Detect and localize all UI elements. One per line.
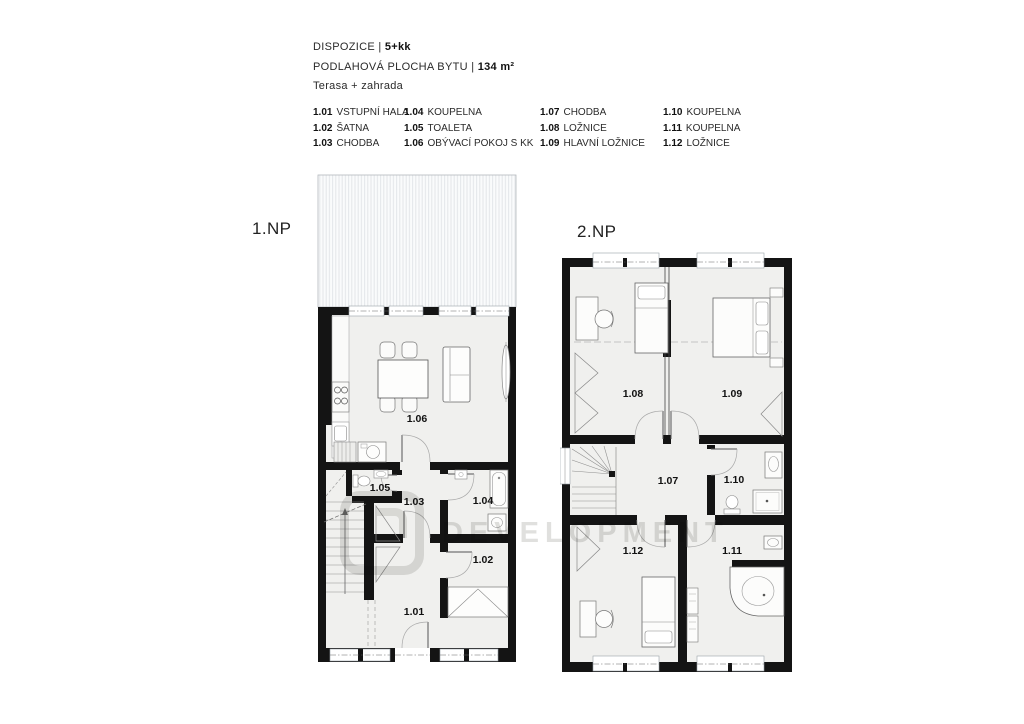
floor1-title: 1.NP xyxy=(252,219,291,239)
washbasin xyxy=(374,470,388,478)
legend-item: 1.06OBÝVACÍ POKOJ S KK xyxy=(404,136,533,152)
chair xyxy=(596,611,613,628)
washbasin xyxy=(764,536,782,549)
dispozice-label: DISPOZICE | xyxy=(313,41,382,53)
floor1-plan: 1.06 1.05 1.03 1.04 1.02 1.01 xyxy=(316,170,518,670)
plocha-label: PODLAHOVÁ PLOCHA BYTU | xyxy=(313,61,474,73)
dining-table xyxy=(378,360,428,398)
legend-item: 1.10KOUPELNA xyxy=(663,105,741,121)
floor2-plan: 1.08 1.09 1.07 1.10 1.12 1.11 xyxy=(560,250,794,674)
legend-item: 1.01VSTUPNÍ HALA xyxy=(313,105,409,121)
room-label-105: 1.05 xyxy=(370,482,391,494)
toilet xyxy=(353,475,370,487)
nightstand xyxy=(770,358,783,367)
header-line-extras: Terasa + zahrada xyxy=(313,77,514,97)
room-label-101: 1.01 xyxy=(404,606,425,618)
room-label-112: 1.12 xyxy=(623,545,644,557)
legend-item: 1.08LOŽNICE xyxy=(540,121,645,137)
desk xyxy=(580,601,596,637)
legend-column-1: 1.01VSTUPNÍ HALA 1.02ŠATNA 1.03CHODBA xyxy=(313,105,409,152)
header-line-plocha: PODLAHOVÁ PLOCHA BYTU | 134 m² xyxy=(313,58,514,78)
wardrobe xyxy=(448,587,508,617)
legend-item: 1.02ŠATNA xyxy=(313,121,409,137)
legend-item: 1.11KOUPELNA xyxy=(663,121,741,137)
room-label-108: 1.08 xyxy=(623,388,644,400)
floor-plan-page: DISPOZICE | 5+kk PODLAHOVÁ PLOCHA BYTU |… xyxy=(0,0,1024,724)
plocha-value: 134 m² xyxy=(478,61,515,73)
legend-item: 1.12LOŽNICE xyxy=(663,136,741,152)
room-label-110: 1.10 xyxy=(724,474,745,486)
extras-label: Terasa + zahrada xyxy=(313,80,403,92)
radiator xyxy=(502,342,510,402)
stair-first-steps xyxy=(334,442,356,462)
legend-item: 1.05TOALETA xyxy=(404,121,533,137)
room-label-103: 1.03 xyxy=(404,496,425,508)
room-label-104: 1.04 xyxy=(473,495,494,507)
room-label-107: 1.07 xyxy=(658,475,679,487)
room-label-109: 1.09 xyxy=(722,388,743,400)
nightstand xyxy=(770,288,783,297)
terrace xyxy=(318,175,516,307)
legend-column-3: 1.07CHODBA 1.08LOŽNICE 1.09HLAVNÍ LOŽNIC… xyxy=(540,105,645,152)
kitchen-counter xyxy=(332,316,349,458)
header-line-dispozice: DISPOZICE | 5+kk xyxy=(313,38,514,58)
washbasin xyxy=(488,514,506,531)
corner-bathtub xyxy=(730,567,784,616)
legend-item: 1.03CHODBA xyxy=(313,136,409,152)
chair xyxy=(595,310,613,328)
legend-column-4: 1.10KOUPELNA 1.11KOUPELNA 1.12LOŽNICE xyxy=(663,105,741,152)
legend-column-2: 1.04KOUPELNA 1.05TOALETA 1.06OBÝVACÍ POK… xyxy=(404,105,533,152)
washbasin xyxy=(765,452,782,478)
floor2-title: 2.NP xyxy=(577,222,616,242)
washer-unit xyxy=(455,470,467,479)
room-label-106: 1.06 xyxy=(407,413,428,425)
legend-item: 1.04KOUPELNA xyxy=(404,105,533,121)
legend-item: 1.09HLAVNÍ LOŽNICE xyxy=(540,136,645,152)
room-label-102: 1.02 xyxy=(473,554,494,566)
toilet xyxy=(726,496,738,509)
sofa xyxy=(443,347,470,402)
washing-machine xyxy=(358,442,386,462)
dispozice-value: 5+kk xyxy=(385,41,411,53)
legend-item: 1.07CHODBA xyxy=(540,105,645,121)
room-label-111: 1.11 xyxy=(722,545,742,557)
plan-header: DISPOZICE | 5+kk PODLAHOVÁ PLOCHA BYTU |… xyxy=(313,38,514,97)
